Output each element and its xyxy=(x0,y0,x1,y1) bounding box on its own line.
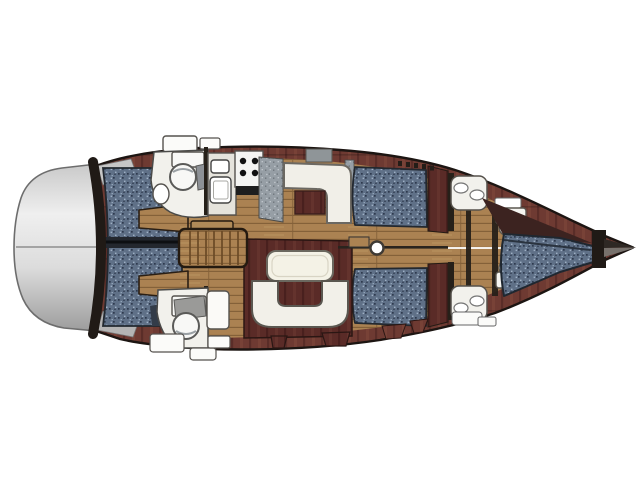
galley-sinks: galley twin sinks xyxy=(210,160,231,203)
bulkhead xyxy=(466,198,471,298)
burner xyxy=(252,170,258,176)
stove-front xyxy=(236,186,262,195)
cabinet-bottom xyxy=(428,263,448,327)
burner xyxy=(252,158,258,164)
bow-bulkhead xyxy=(592,230,606,268)
toilet-bowl xyxy=(170,164,196,190)
salon-settee-starboard: salon settee (starboard) xyxy=(353,268,428,326)
burner xyxy=(240,158,246,164)
mast-step-block xyxy=(349,237,369,247)
locker-lid xyxy=(150,334,184,352)
yacht-layout-plan: sailing yacht interior layout plan xyxy=(0,0,640,480)
stern-swim-platform: stern swim platform xyxy=(14,164,102,331)
basin xyxy=(470,296,484,306)
cabinet-top xyxy=(428,166,448,233)
mast: mast at centerline xyxy=(371,242,384,255)
deck-locker-gray xyxy=(306,149,332,162)
hatch-lid-small xyxy=(200,138,220,149)
salon-settee-port: salon settee (port) xyxy=(353,167,428,227)
aft-berth-centerline-groove xyxy=(103,241,187,244)
dinette-foot-tab xyxy=(271,336,287,348)
locker-lid-small xyxy=(478,317,496,326)
burner xyxy=(240,170,246,176)
dinette-foot-tab xyxy=(322,332,350,346)
shower-door xyxy=(207,291,229,329)
dinette: U-shaped dinette with table dinette tabl… xyxy=(244,239,352,348)
locker-lid xyxy=(190,348,216,360)
head-basin xyxy=(153,184,169,204)
galley-worktop: galley worktop xyxy=(259,157,283,222)
sink-small xyxy=(211,160,229,173)
basin xyxy=(454,183,468,193)
hatch-lid xyxy=(163,136,197,152)
locker-lid-small xyxy=(208,336,230,348)
basin xyxy=(470,190,484,200)
companionway-steps: companionway steps xyxy=(179,221,247,267)
yacht-layout-page: sailing yacht interior layout plan xyxy=(0,0,640,480)
l-settee-table xyxy=(295,191,325,214)
